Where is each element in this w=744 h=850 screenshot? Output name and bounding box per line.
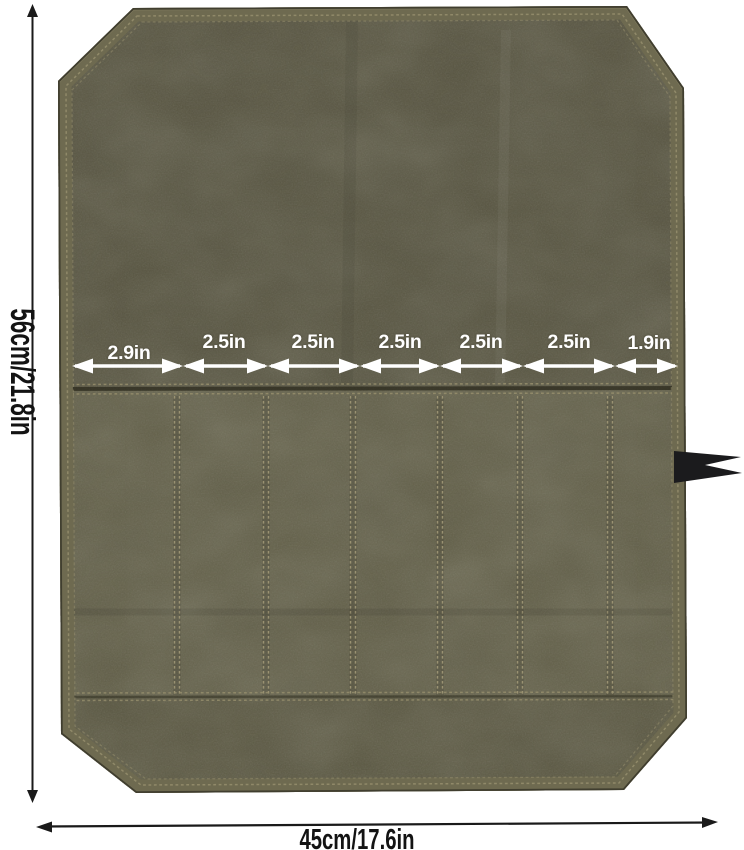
fabric-grain-texture	[40, 0, 700, 810]
arrow-down-icon	[27, 790, 38, 803]
pocket-stitch-line	[438, 396, 443, 695]
pocket-stitch-line	[608, 396, 613, 695]
annotated-product-photo: 2.9in 2.5in 2.5in 2.5in 2.5in 2.5in 1.9i…	[0, 0, 744, 850]
pocket-stitch-line	[351, 396, 356, 695]
pocket-stitch-line	[264, 396, 269, 695]
overall-width-label: 45cm/17.6in	[299, 826, 414, 850]
pocket-width-label: 2.5in	[548, 333, 591, 353]
fabric-crease	[347, 20, 352, 385]
tool-roll-body	[40, 0, 742, 810]
pocket-width-label: 2.5in	[460, 333, 503, 353]
arrow-up-icon	[27, 4, 38, 17]
pocket-width-label: 2.5in	[379, 333, 422, 353]
pocket-stitch-line	[518, 396, 523, 695]
tie-strap	[674, 451, 742, 483]
arrow-right-icon	[702, 817, 718, 828]
pocket-width-label: 2.5in	[203, 333, 246, 353]
tool-roll-photo	[0, 0, 744, 850]
pocket-width-label: 1.9in	[628, 334, 671, 354]
arrow-left-icon	[36, 822, 52, 833]
pocket-width-label: 2.5in	[292, 333, 335, 353]
overall-height-label: 56cm/21.8in	[5, 308, 39, 435]
pocket-width-label: 2.9in	[108, 344, 151, 364]
pocket-stitch-line	[175, 396, 180, 695]
